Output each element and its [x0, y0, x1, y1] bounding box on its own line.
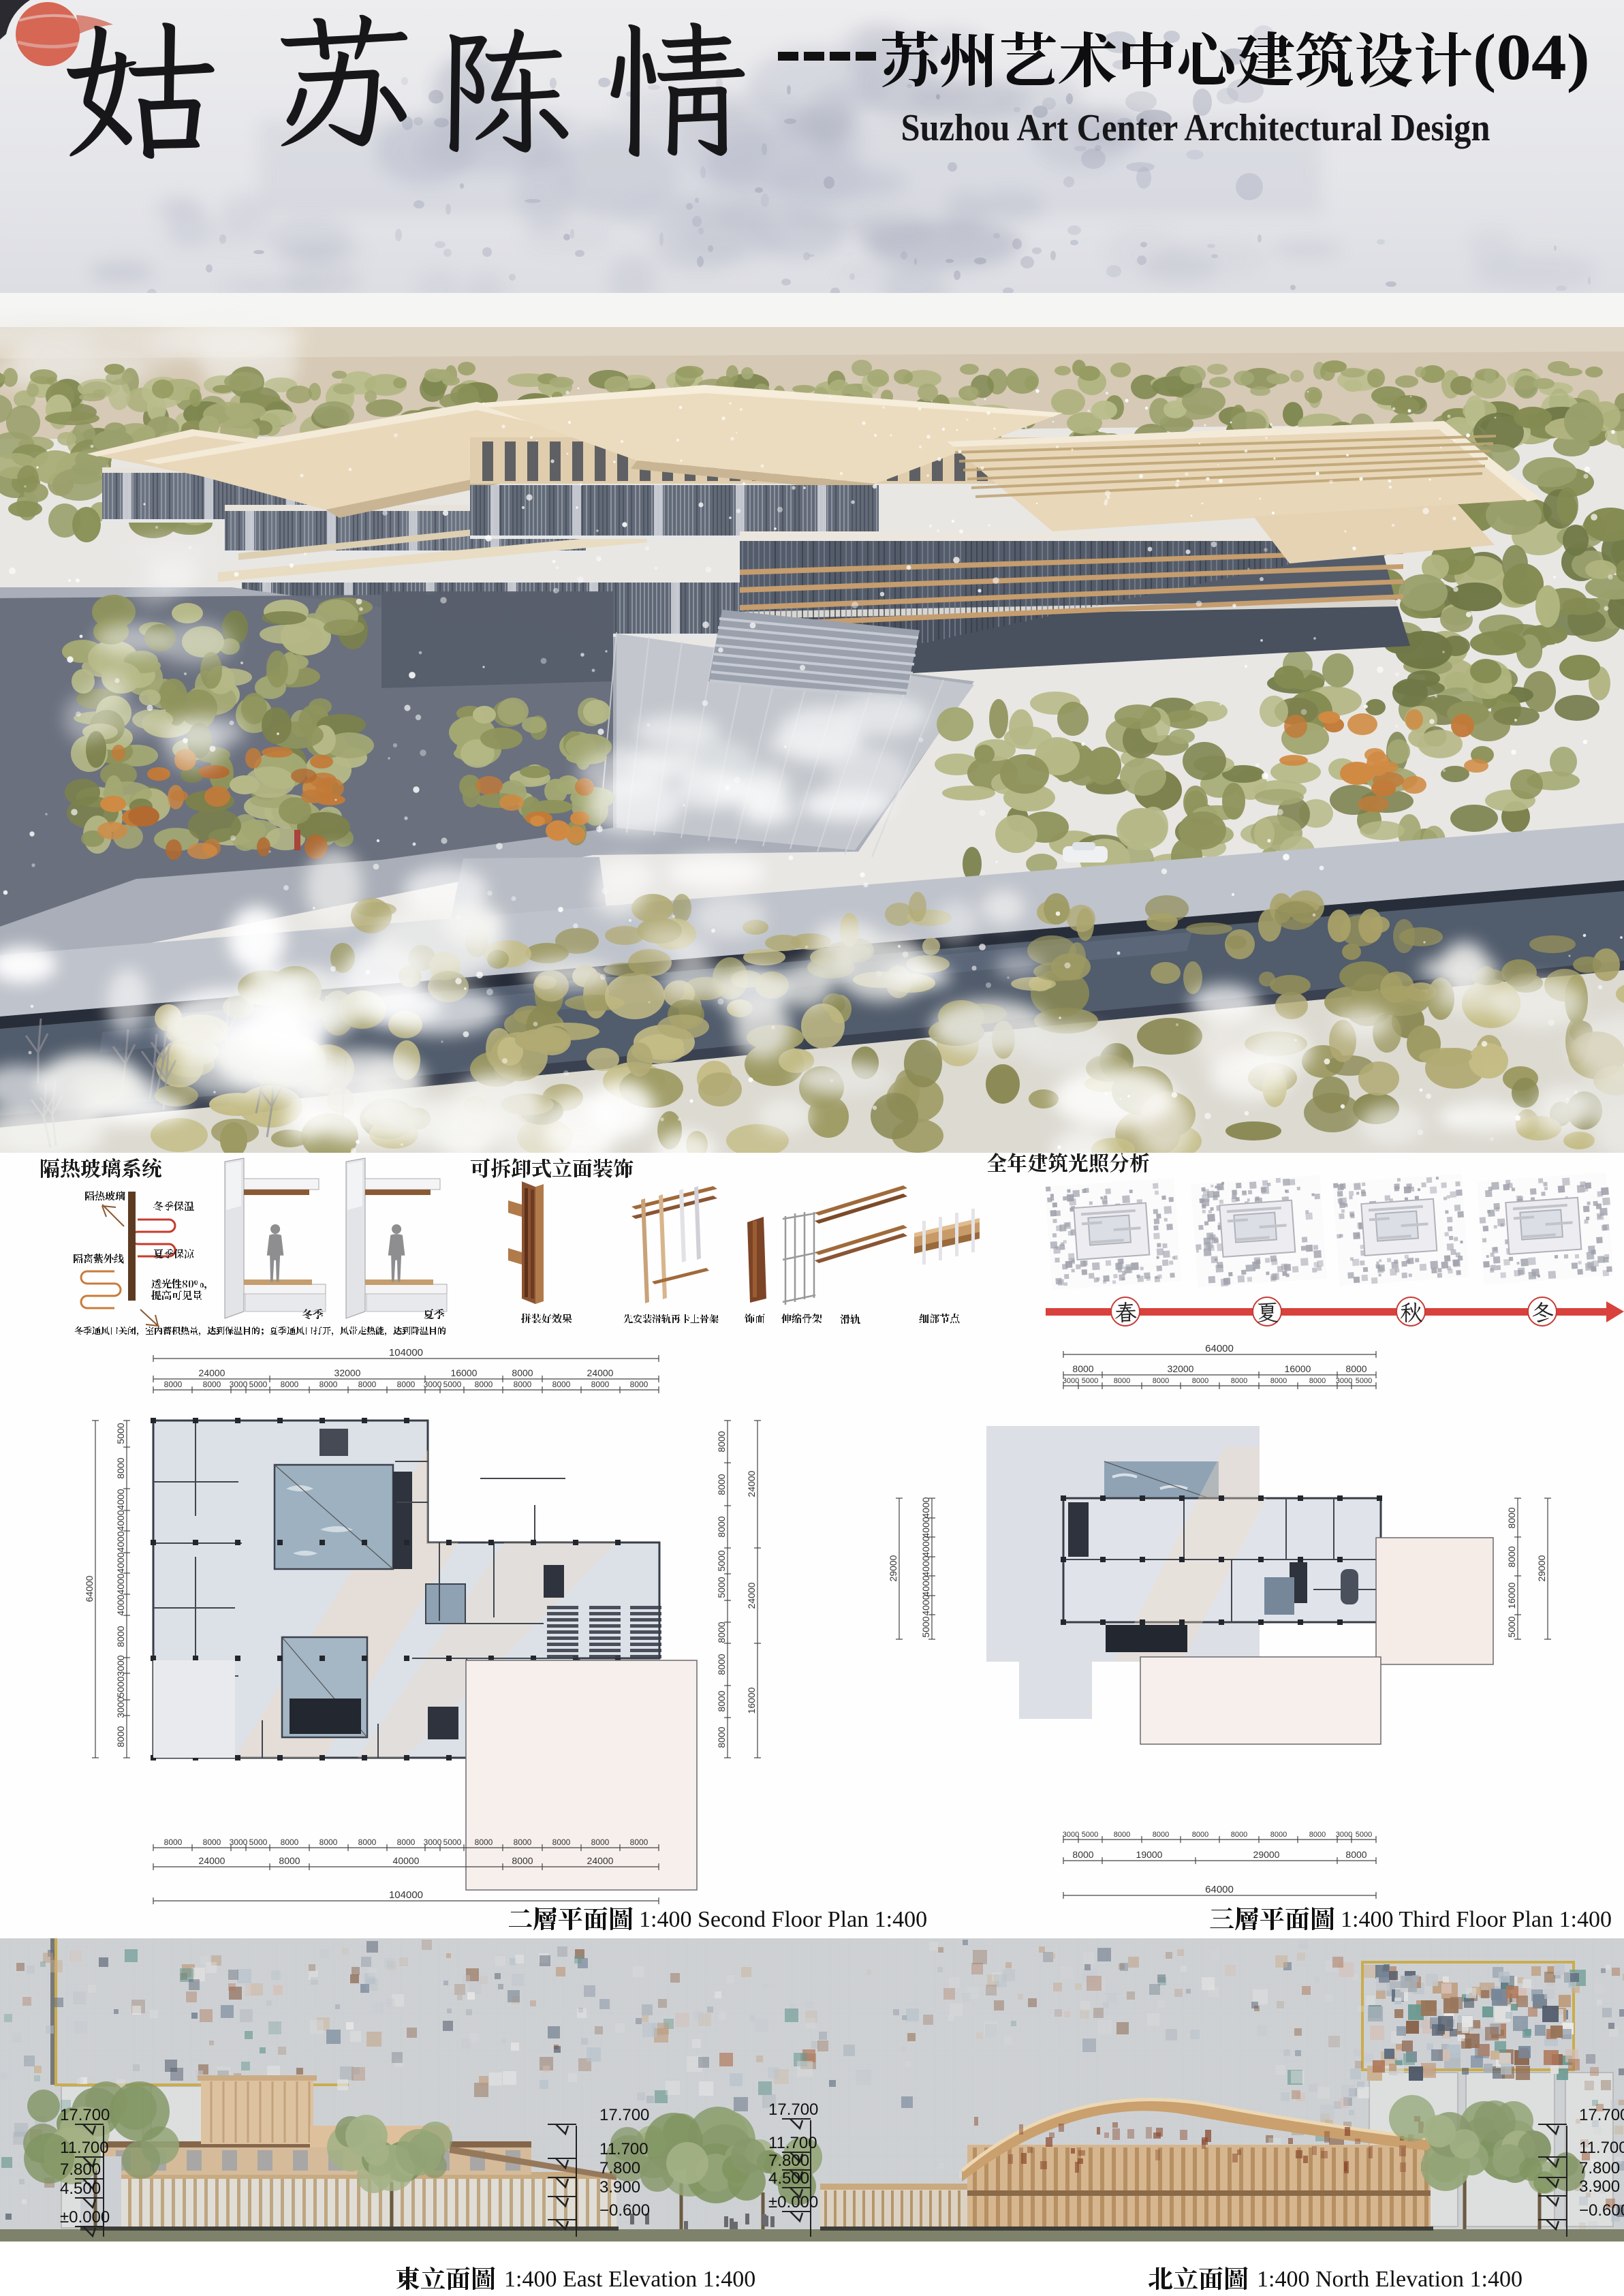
svg-text:104000: 104000 — [389, 1347, 423, 1359]
svg-text:8000: 8000 — [1506, 1546, 1517, 1567]
svg-text:3000: 3000 — [424, 1380, 442, 1389]
svg-text:16000: 16000 — [451, 1367, 478, 1378]
svg-text:4000: 4000 — [115, 1489, 126, 1510]
svg-text:3000: 3000 — [1063, 1377, 1079, 1385]
svg-text:8000: 8000 — [1345, 1849, 1367, 1860]
svg-text:24000: 24000 — [746, 1470, 757, 1497]
svg-text:8000: 8000 — [716, 1726, 727, 1748]
svg-text:3000: 3000 — [230, 1380, 248, 1389]
svg-text:8000: 8000 — [591, 1380, 610, 1389]
svg-text:5000: 5000 — [443, 1380, 462, 1389]
svg-text:4000: 4000 — [920, 1517, 931, 1538]
svg-text:8000: 8000 — [716, 1622, 727, 1643]
svg-text:3000: 3000 — [1336, 1377, 1352, 1385]
svg-text:5000: 5000 — [920, 1616, 931, 1637]
svg-text:5000: 5000 — [249, 1837, 268, 1847]
svg-text:8000: 8000 — [1309, 1831, 1326, 1839]
svg-text:19000: 19000 — [1136, 1849, 1163, 1860]
svg-text:1:400 East Elevation 1:400: 1:400 East Elevation 1:400 — [504, 2267, 755, 2292]
svg-text:5000: 5000 — [249, 1380, 268, 1389]
svg-text:(04): (04) — [1473, 20, 1590, 93]
svg-text:8000: 8000 — [512, 1855, 533, 1866]
svg-text:8000: 8000 — [552, 1837, 571, 1847]
svg-text:32000: 32000 — [334, 1367, 361, 1378]
svg-text:5000: 5000 — [1082, 1831, 1098, 1839]
svg-text:5000: 5000 — [115, 1423, 126, 1444]
svg-text:4000: 4000 — [920, 1575, 931, 1596]
svg-text:8000: 8000 — [716, 1654, 727, 1675]
svg-text:8000: 8000 — [1192, 1831, 1208, 1839]
svg-text:5000: 5000 — [1356, 1831, 1372, 1839]
svg-text:8000: 8000 — [1345, 1363, 1367, 1374]
svg-text:3000: 3000 — [424, 1837, 442, 1847]
svg-text:8000: 8000 — [716, 1474, 727, 1495]
svg-text:8000: 8000 — [1114, 1377, 1130, 1385]
svg-text:32000: 32000 — [1168, 1363, 1194, 1374]
svg-text:8000: 8000 — [115, 1626, 126, 1647]
svg-text:17.700: 17.700 — [1579, 2106, 1624, 2124]
svg-text:8000: 8000 — [397, 1837, 416, 1847]
svg-text:3000: 3000 — [1336, 1831, 1352, 1839]
svg-text:Suzhou Art Center Architectura: Suzhou Art Center Architectural Design — [901, 107, 1490, 149]
svg-text:5000: 5000 — [716, 1577, 727, 1598]
svg-text:8000: 8000 — [514, 1837, 532, 1847]
svg-text:24000: 24000 — [746, 1582, 757, 1609]
svg-text:4000: 4000 — [115, 1552, 126, 1573]
svg-text:8000: 8000 — [358, 1837, 377, 1847]
svg-text:24000: 24000 — [199, 1855, 225, 1866]
svg-text:8000: 8000 — [1072, 1363, 1093, 1374]
svg-text:11.700: 11.700 — [599, 2140, 649, 2158]
svg-text:8000: 8000 — [475, 1380, 493, 1389]
svg-text:3.900: 3.900 — [1579, 2177, 1620, 2196]
svg-text:8000: 8000 — [1231, 1377, 1247, 1385]
svg-text:29000: 29000 — [1253, 1849, 1280, 1860]
svg-text:8000: 8000 — [115, 1457, 126, 1478]
svg-text:17.700: 17.700 — [60, 2106, 110, 2124]
svg-text:3000: 3000 — [115, 1696, 126, 1718]
svg-text:±0.000: ±0.000 — [768, 2193, 818, 2212]
svg-text:8000: 8000 — [552, 1380, 571, 1389]
svg-text:64000: 64000 — [1205, 1343, 1234, 1354]
svg-text:8000: 8000 — [512, 1367, 533, 1378]
svg-text:8000: 8000 — [514, 1380, 532, 1389]
svg-text:4000: 4000 — [920, 1555, 931, 1577]
svg-text:8000: 8000 — [1309, 1377, 1326, 1385]
svg-text:104000: 104000 — [389, 1889, 423, 1901]
svg-text:8000: 8000 — [281, 1837, 299, 1847]
svg-text:5000: 5000 — [716, 1550, 727, 1571]
svg-text:8000: 8000 — [1231, 1831, 1247, 1839]
svg-text:8000: 8000 — [358, 1380, 377, 1389]
svg-text:4000: 4000 — [115, 1531, 126, 1552]
svg-text:8000: 8000 — [475, 1837, 493, 1847]
svg-text:−0.600: −0.600 — [599, 2201, 650, 2220]
svg-text:8000: 8000 — [1270, 1377, 1287, 1385]
svg-text:7.800: 7.800 — [60, 2160, 101, 2179]
svg-text:64000: 64000 — [1205, 1884, 1234, 1895]
svg-text:4000: 4000 — [115, 1594, 126, 1615]
svg-text:4000: 4000 — [920, 1497, 931, 1518]
svg-text:24000: 24000 — [199, 1367, 225, 1378]
svg-text:5000: 5000 — [115, 1676, 126, 1697]
svg-text:64000: 64000 — [84, 1575, 95, 1602]
svg-text:16000: 16000 — [746, 1687, 757, 1713]
svg-text:24000: 24000 — [587, 1855, 614, 1866]
svg-text:4.500: 4.500 — [60, 2179, 101, 2198]
svg-text:8000: 8000 — [1270, 1831, 1287, 1839]
svg-text:4000: 4000 — [115, 1510, 126, 1531]
svg-text:8000: 8000 — [164, 1380, 183, 1389]
svg-text:8000: 8000 — [279, 1855, 300, 1866]
svg-text:8000: 8000 — [203, 1380, 221, 1389]
svg-text:11.700: 11.700 — [60, 2139, 109, 2157]
svg-text:8000: 8000 — [1153, 1831, 1169, 1839]
svg-text:8000: 8000 — [716, 1431, 727, 1452]
svg-text:4000: 4000 — [115, 1573, 126, 1594]
svg-text:8000: 8000 — [203, 1837, 221, 1847]
svg-text:5000: 5000 — [1506, 1616, 1517, 1637]
svg-text:8000: 8000 — [1153, 1377, 1169, 1385]
svg-text:4.500: 4.500 — [768, 2169, 809, 2188]
svg-text:8000: 8000 — [1072, 1849, 1093, 1860]
svg-text:8000: 8000 — [1192, 1377, 1208, 1385]
svg-text:8000: 8000 — [630, 1837, 649, 1847]
svg-text:8000: 8000 — [115, 1726, 126, 1747]
svg-text:3000: 3000 — [1063, 1831, 1079, 1839]
svg-text:1:400 Third Floor Plan 1:4: 1:400 Third Floor Plan 1:400 — [1341, 1907, 1612, 1932]
svg-text:11.700: 11.700 — [768, 2134, 817, 2152]
svg-text:29000: 29000 — [888, 1555, 899, 1581]
svg-text:−0.600: −0.600 — [1579, 2201, 1624, 2220]
svg-text:3.900: 3.900 — [599, 2178, 640, 2197]
svg-text:8000: 8000 — [716, 1516, 727, 1537]
svg-text:4000: 4000 — [920, 1594, 931, 1615]
svg-text:8000: 8000 — [397, 1380, 416, 1389]
svg-text:3000: 3000 — [115, 1655, 126, 1676]
svg-text:7.800: 7.800 — [599, 2159, 640, 2177]
svg-text:1:400 Second Floor Plan 1: 1:400 Second Floor Plan 1:400 — [639, 1907, 927, 1932]
svg-text:8000: 8000 — [1114, 1831, 1130, 1839]
svg-text:±0.000: ±0.000 — [60, 2208, 110, 2227]
svg-text:5000: 5000 — [1082, 1377, 1098, 1385]
svg-text:17.700: 17.700 — [599, 2106, 649, 2124]
svg-text:1:400 North Elevation 1:400: 1:400 North Elevation 1:400 — [1257, 2267, 1522, 2292]
svg-text:8000: 8000 — [319, 1380, 338, 1389]
svg-text:40000: 40000 — [393, 1855, 420, 1866]
svg-text:8000: 8000 — [281, 1380, 299, 1389]
svg-text:8000: 8000 — [630, 1380, 649, 1389]
svg-text:11.700: 11.700 — [1579, 2139, 1624, 2157]
svg-text:5000: 5000 — [1356, 1377, 1372, 1385]
svg-text:5000: 5000 — [443, 1837, 462, 1847]
svg-text:4000: 4000 — [920, 1536, 931, 1557]
svg-text:17.700: 17.700 — [768, 2100, 818, 2119]
svg-text:8000: 8000 — [164, 1837, 183, 1847]
svg-text:24000: 24000 — [587, 1367, 614, 1378]
svg-text:8000: 8000 — [591, 1837, 610, 1847]
svg-text:8000: 8000 — [319, 1837, 338, 1847]
svg-text:7.800: 7.800 — [1579, 2159, 1620, 2177]
svg-text:3000: 3000 — [230, 1837, 248, 1847]
svg-text:7.800: 7.800 — [768, 2152, 809, 2170]
svg-text:16000: 16000 — [1506, 1582, 1517, 1609]
svg-text:8000: 8000 — [1506, 1507, 1517, 1528]
svg-text:16000: 16000 — [1285, 1363, 1311, 1374]
svg-text:8000: 8000 — [716, 1690, 727, 1711]
svg-text:29000: 29000 — [1536, 1555, 1547, 1581]
